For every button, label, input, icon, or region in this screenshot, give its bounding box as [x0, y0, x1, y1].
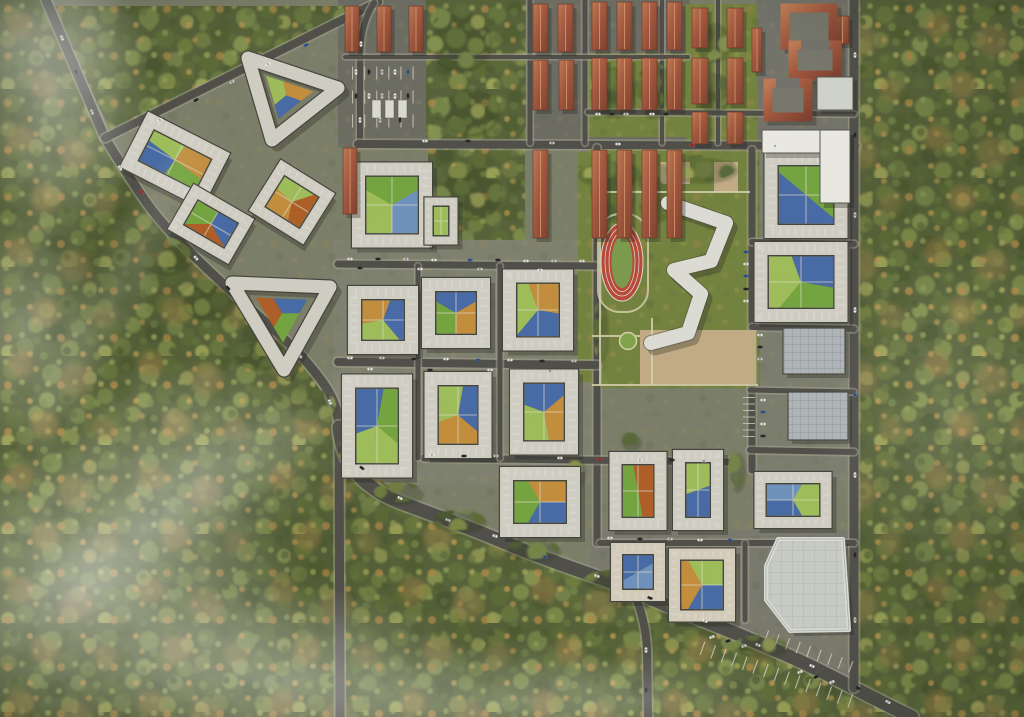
aerial-masterplan-view [0, 0, 1024, 717]
masterplan-render [0, 0, 1024, 717]
vignette-overlay [0, 0, 1024, 717]
